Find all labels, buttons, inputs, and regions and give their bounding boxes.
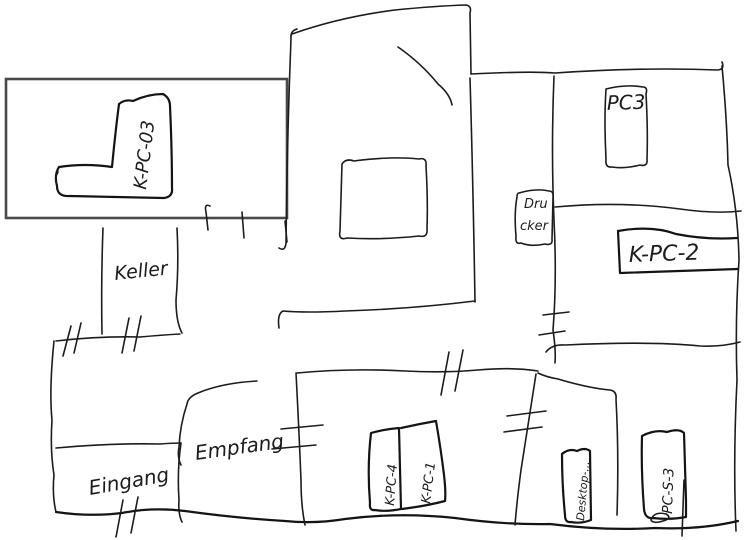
drucker-label-line2: cker (520, 219, 550, 234)
door-marks-slanted (504, 411, 546, 432)
k-pc-4-label: K-PC-4 (383, 464, 401, 507)
wall-keller-left (102, 228, 103, 334)
drucker-label-line1: Dru (524, 197, 548, 212)
wall-right-horizontal-upper (555, 204, 741, 212)
floor-plan-drawing: K-PC-03 PC3 Dru cker K-PC-2 Keller Einga… (0, 0, 746, 540)
wall-right-horizontal-lower (546, 342, 740, 352)
wall-bottom-boundary (56, 509, 738, 529)
wall-top-right (471, 62, 723, 74)
door-marks-bottom (116, 497, 138, 537)
k-pc-03-label: K-PC-03 (130, 119, 159, 190)
eingang-label: Eingang (87, 462, 171, 500)
wall-empfang-vertical (296, 373, 305, 525)
keller-label: Keller (113, 257, 170, 285)
floor-plan-canvas: K-PC-03 PC3 Dru cker K-PC-2 Keller Einga… (0, 0, 746, 540)
wall-eingang-top (56, 443, 181, 448)
wall-central-bottom (279, 301, 476, 328)
pc3-label: PC3 (606, 90, 646, 115)
wall-outer-right (722, 66, 739, 531)
k-pc-1-label: K-PC-1 (419, 461, 439, 504)
inner-square-outline (340, 158, 428, 239)
door-swing-arc (398, 47, 452, 105)
wall-slanted (515, 374, 536, 525)
pc-s-3-label: PC-S-3 (660, 467, 678, 514)
wall-left-lower (51, 341, 56, 512)
door-marks-rectangle-edge (206, 205, 288, 242)
desktop-label: Desktop-... (574, 461, 592, 522)
k-pc-2-label: K-PC-2 (628, 241, 700, 268)
wall-keller-right (176, 228, 182, 333)
wall-central-right (470, 78, 475, 302)
wall-keller-bottom (56, 334, 180, 341)
wall-central-top (292, 5, 471, 74)
empfang-label: Empfang (193, 429, 285, 465)
wall-mid-horizontal (297, 369, 538, 373)
